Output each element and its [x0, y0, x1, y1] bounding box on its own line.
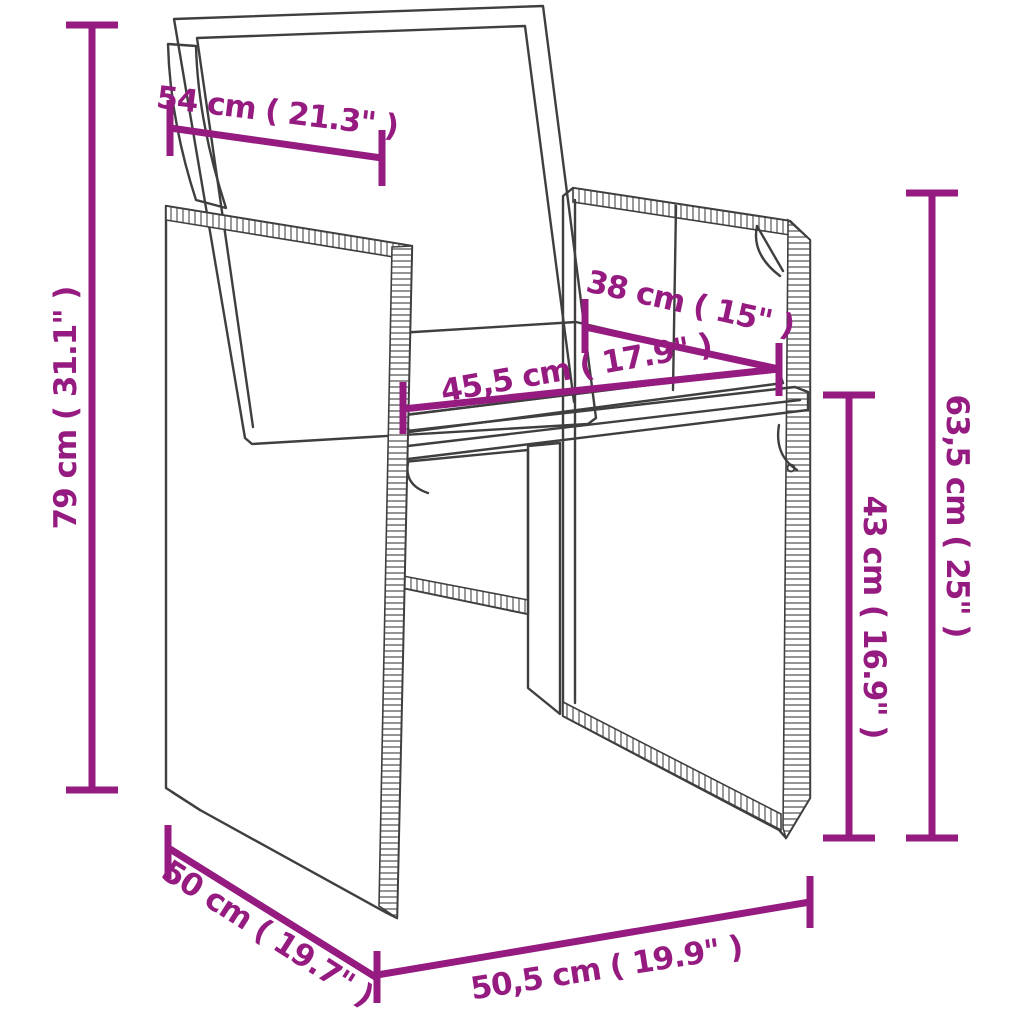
dimension-label: 50 cm ( 19.7" ): [155, 853, 379, 1014]
dimension-seat-height: 43 cm ( 16.9" ): [823, 395, 892, 838]
dimension-chair-width: 50,5 cm ( 19.9" ): [377, 876, 810, 1007]
chair-dimension-drawing: 54 cm ( 21.3" ) 79 cm ( 31.1" ) 38 cm ( …: [0, 0, 1024, 1024]
dimension-label: 54 cm ( 21.3" ): [154, 79, 400, 144]
dimension-label: 63,5 cm ( 25" ): [939, 395, 975, 638]
dimension-armrest-height: 63,5 cm ( 25" ): [906, 193, 975, 838]
under-seat-left-bottom-roll: [403, 576, 528, 614]
left-armrest-top-roll: [166, 206, 412, 260]
product-dimension-diagram: 54 cm ( 21.3" ) 79 cm ( 31.1" ) 38 cm ( …: [0, 0, 1024, 1024]
left-armrest-panel: [166, 206, 412, 918]
dimension-seat-width: 45,5 cm ( 17.9" ): [403, 327, 779, 434]
left-armrest-weave: [166, 206, 412, 918]
dimension-label: 43 cm ( 16.9" ): [856, 496, 892, 739]
dimension-label: 79 cm ( 31.1" ): [48, 287, 84, 530]
dimension-label: 50,5 cm ( 19.9" ): [468, 929, 745, 1007]
right-panel-bottom-roll: [563, 702, 781, 830]
under-seat-divider: [528, 443, 560, 714]
dimension-chair-depth: 50 cm ( 19.7" ): [155, 825, 379, 1014]
left-armrest-foot-line: [172, 792, 200, 810]
dimension-back-width: 54 cm ( 21.3" ): [154, 79, 400, 186]
under-seat-structure: [403, 443, 560, 714]
rail-left-bracket: [407, 463, 428, 493]
dimension-total-height: 79 cm ( 31.1" ): [48, 25, 118, 790]
